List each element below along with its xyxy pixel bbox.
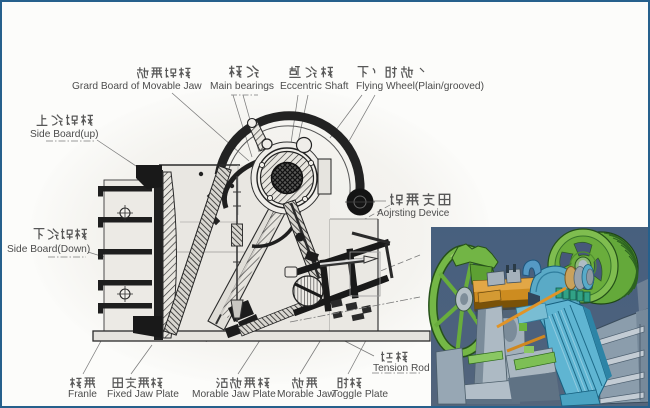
- svg-text:Flying Wheel(Plain/grooved): Flying Wheel(Plain/grooved): [356, 81, 484, 92]
- svg-text:Grard Board of Movable Jaw: Grard Board of Movable Jaw: [72, 81, 202, 92]
- svg-text:Morable Jaw Plate: Morable Jaw Plate: [192, 389, 276, 400]
- svg-text:Toggle Plate: Toggle Plate: [332, 389, 388, 400]
- svg-text:Franle: Franle: [68, 389, 97, 400]
- svg-text:Eccentric Shaft: Eccentric Shaft: [280, 81, 349, 92]
- svg-text:Side Board(up): Side Board(up): [30, 129, 99, 140]
- svg-text:Side Board(Down): Side Board(Down): [7, 244, 90, 255]
- svg-text:Morable Jaw: Morable Jaw: [277, 389, 335, 400]
- svg-text:Main bearings: Main bearings: [210, 81, 274, 92]
- svg-text:Fixed Jaw Plate: Fixed Jaw Plate: [107, 389, 179, 400]
- svg-text:Aojrsting Device: Aojrsting Device: [377, 208, 450, 219]
- svg-text:Tension Rod: Tension Rod: [373, 363, 430, 374]
